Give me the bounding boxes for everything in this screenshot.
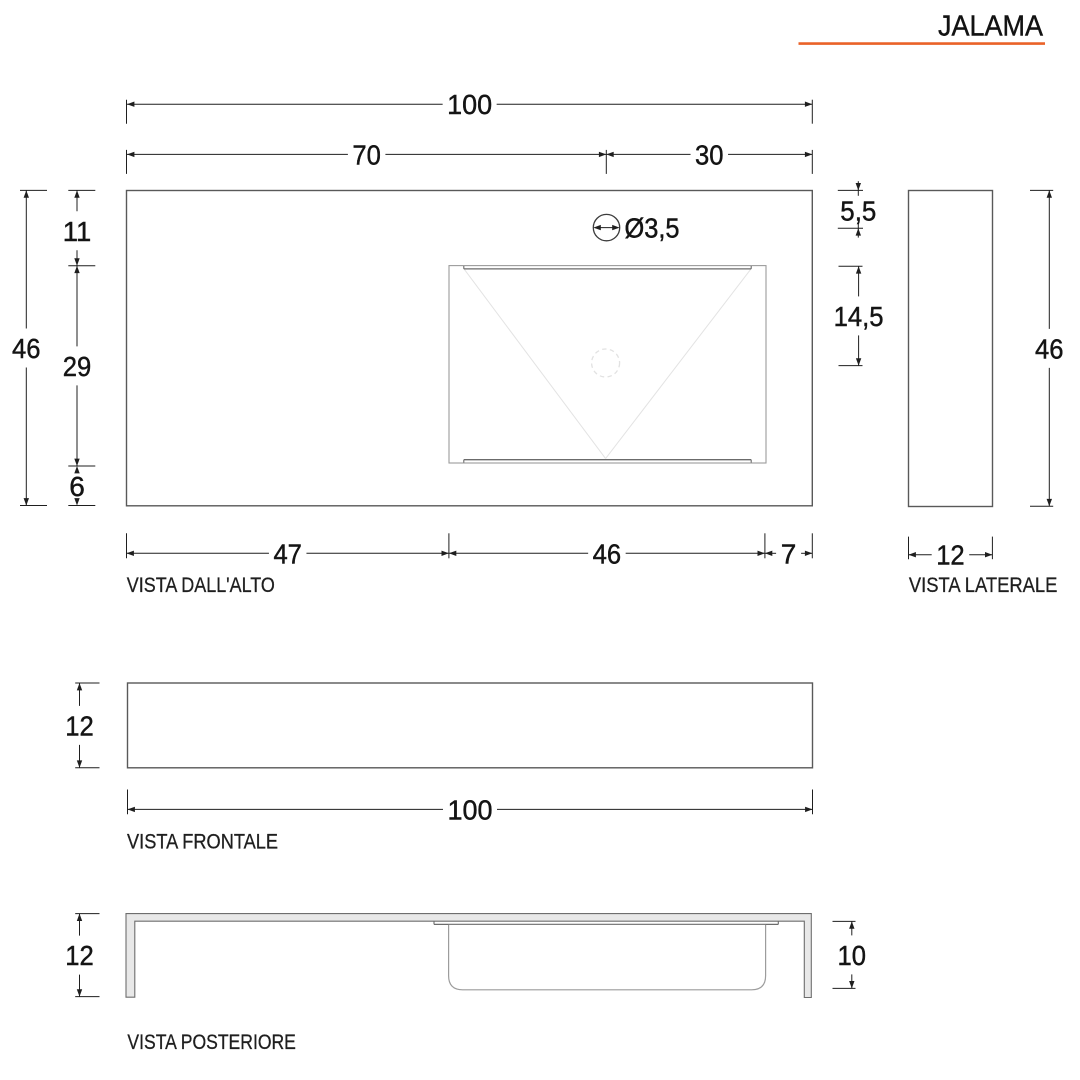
svg-text:12: 12	[936, 540, 965, 571]
svg-text:JALAMA: JALAMA	[938, 11, 1044, 43]
svg-text:100: 100	[447, 89, 492, 120]
svg-text:46: 46	[1035, 333, 1064, 364]
svg-text:46: 46	[593, 538, 622, 569]
svg-text:14,5: 14,5	[834, 301, 884, 332]
svg-text:46: 46	[12, 333, 41, 364]
svg-text:VISTA LATERALE: VISTA LATERALE	[909, 574, 1058, 597]
svg-text:7: 7	[781, 538, 797, 569]
svg-text:5,5: 5,5	[840, 196, 876, 227]
svg-text:VISTA DALL'ALTO: VISTA DALL'ALTO	[127, 574, 275, 597]
svg-text:100: 100	[448, 794, 493, 825]
svg-text:VISTA POSTERIORE: VISTA POSTERIORE	[127, 1031, 296, 1054]
svg-text:47: 47	[273, 538, 302, 569]
svg-text:Ø3,5: Ø3,5	[625, 213, 680, 244]
svg-text:6: 6	[69, 471, 85, 502]
svg-text:VISTA FRONTALE: VISTA FRONTALE	[127, 830, 278, 853]
svg-text:12: 12	[65, 940, 94, 971]
svg-text:70: 70	[352, 139, 381, 170]
svg-text:12: 12	[65, 710, 94, 741]
svg-text:29: 29	[63, 351, 92, 382]
svg-text:30: 30	[695, 139, 724, 170]
svg-text:11: 11	[63, 216, 92, 247]
svg-text:10: 10	[838, 940, 867, 971]
